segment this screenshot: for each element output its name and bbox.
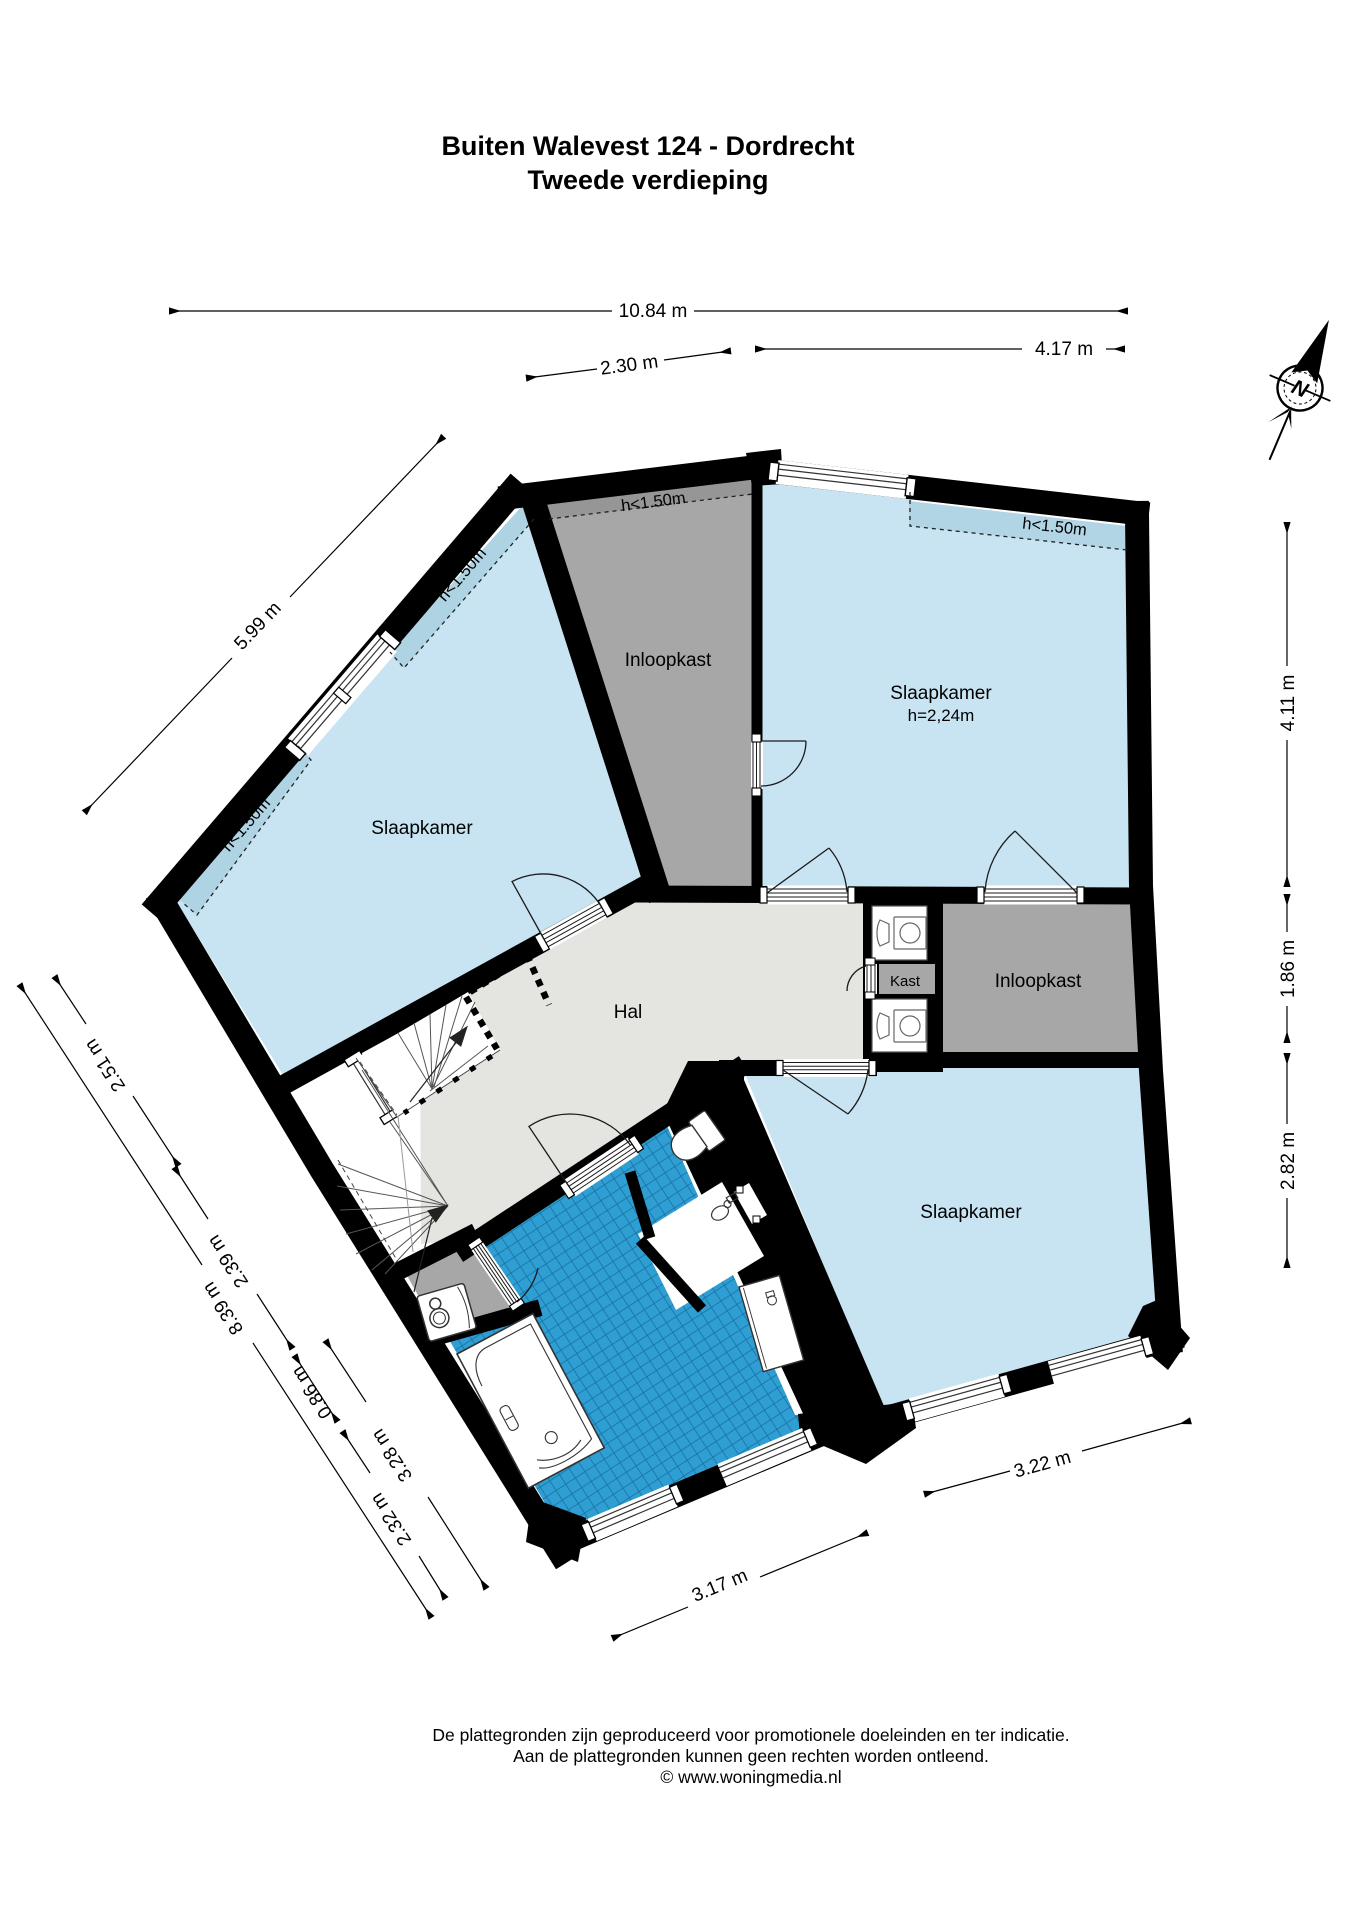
svg-text:De plattegronden zijn geproduc: De plattegronden zijn geproduceerd voor … (432, 1725, 1069, 1745)
svg-text:Slaapkamer: Slaapkamer (890, 683, 992, 704)
svg-text:Aan de plattegronden kunnen ge: Aan de plattegronden kunnen geen rechten… (513, 1746, 989, 1766)
svg-text:Tweede verdieping: Tweede verdieping (527, 165, 768, 195)
svg-text:h=2,24m: h=2,24m (908, 706, 975, 725)
svg-text:Inloopkast: Inloopkast (625, 650, 712, 671)
svg-text:© www.woningmedia.nl: © www.woningmedia.nl (660, 1767, 841, 1787)
svg-text:2.82 m: 2.82 m (1278, 1132, 1299, 1190)
svg-text:Kast: Kast (890, 973, 921, 990)
svg-text:Buiten Walevest 124 - Dordrech: Buiten Walevest 124 - Dordrecht (441, 131, 854, 161)
svg-text:Hal: Hal (614, 1002, 643, 1023)
svg-text:Slaapkamer: Slaapkamer (920, 1202, 1022, 1223)
svg-text:Inloopkast: Inloopkast (995, 971, 1082, 992)
svg-text:Slaapkamer: Slaapkamer (371, 818, 473, 839)
svg-text:1.86 m: 1.86 m (1278, 940, 1299, 998)
svg-text:10.84 m: 10.84 m (619, 301, 688, 322)
svg-text:4.17 m: 4.17 m (1035, 339, 1093, 360)
svg-text:4.11 m: 4.11 m (1278, 675, 1299, 732)
